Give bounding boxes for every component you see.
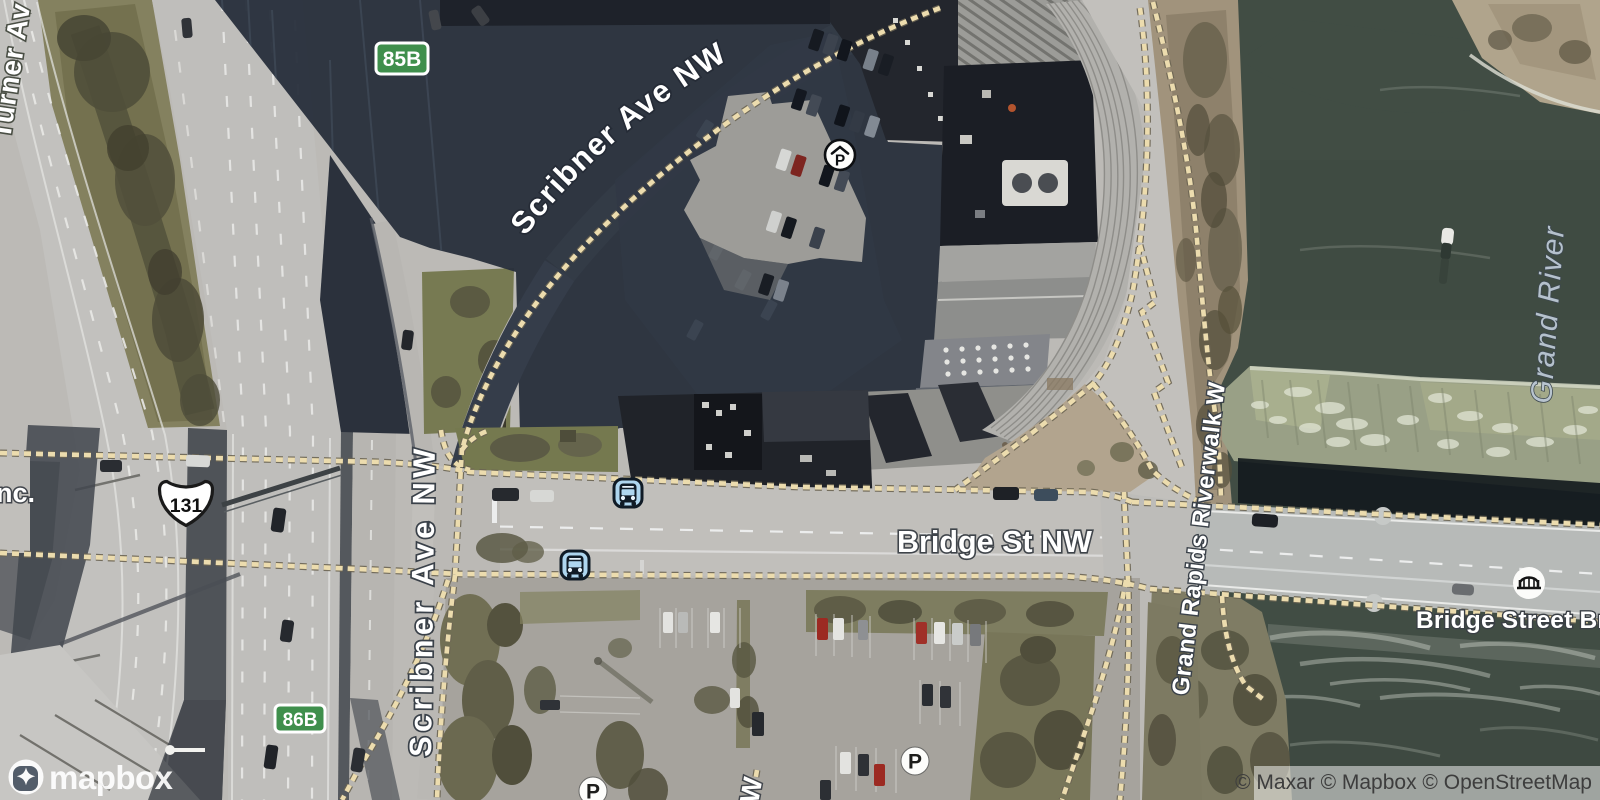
- svg-text:P: P: [908, 751, 922, 774]
- svg-text:P: P: [835, 153, 845, 170]
- svg-text:86B: 86B: [283, 710, 318, 731]
- svg-text:P: P: [586, 781, 600, 800]
- svg-text:Scribner Ave NW: Scribner Ave NW: [403, 444, 442, 757]
- svg-text:131: 131: [170, 495, 203, 517]
- svg-text:Bridge St NW: Bridge St NW: [897, 525, 1092, 559]
- svg-text:mapbox: mapbox: [49, 759, 174, 796]
- svg-text:Bridge Street Bri: Bridge Street Bri: [1416, 607, 1600, 634]
- svg-text:© Maxar © Mapbox © OpenStreetM: © Maxar © Mapbox © OpenStreetMap: [1235, 771, 1592, 794]
- svg-text:85B: 85B: [383, 48, 422, 71]
- svg-text:nc.: nc.: [0, 478, 35, 508]
